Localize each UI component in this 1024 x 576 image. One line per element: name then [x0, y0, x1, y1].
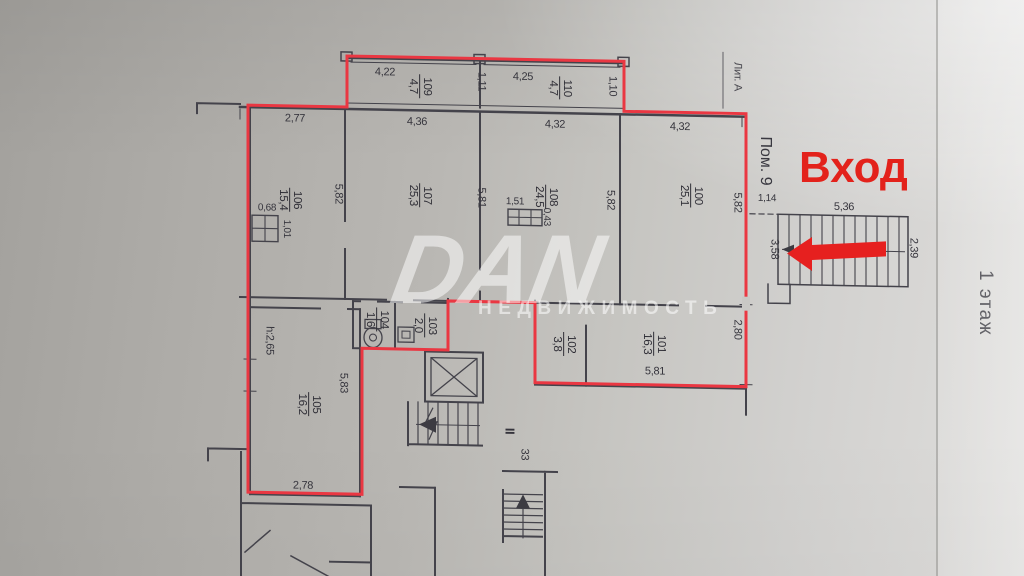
dim-label: 2,77: [285, 113, 305, 124]
room-area: 1,6: [364, 307, 377, 332]
section-label: II: [504, 428, 517, 435]
dim-label: 1,10: [607, 76, 618, 96]
room-label-106: 106 15,4: [277, 188, 303, 213]
dim-label: 5,82: [605, 190, 616, 210]
room-area: 16,2: [296, 392, 309, 417]
room-label-105: 105 16,2: [296, 392, 322, 417]
room-number: 107: [420, 183, 434, 208]
dim-label: 0,68: [258, 203, 276, 213]
room-area: 25,1: [678, 183, 691, 208]
room-label-102: 102 3,8: [551, 332, 577, 357]
room-label-101: 101 16,3: [641, 332, 667, 357]
paper-edge-strip: [938, 0, 1024, 576]
room-area: 25,3: [407, 183, 420, 208]
entrance-arrow-icon: [787, 236, 886, 272]
dim-label: 4,22: [375, 67, 395, 78]
dim-label: 1,01: [281, 220, 291, 238]
room-number: 100: [691, 183, 705, 208]
room-area: 3,8: [551, 332, 564, 357]
room-label-107: 107 25,3: [407, 183, 433, 208]
dim-label: 4,32: [545, 119, 565, 130]
room-area: 16,3: [641, 332, 654, 357]
elevator-shaft: [425, 352, 483, 403]
floorplan-photo: 4,22 1,11 4,25 1,10 2,77 4,36 4,32 4,32 …: [0, 0, 1024, 576]
dim-label: 1,51: [506, 197, 524, 207]
liter-label: Лит. А: [732, 62, 743, 91]
premise-label: Пом. 9: [757, 136, 773, 185]
dim-label: 4,36: [407, 117, 427, 128]
room-area: 4,7: [407, 74, 420, 99]
room-number: 101: [654, 332, 668, 357]
dim-label: h:2,65: [264, 326, 275, 355]
apartment-number-label: 33: [519, 448, 530, 460]
dim-label: 5,82: [333, 184, 344, 204]
room-number: 108: [546, 185, 560, 210]
dim-label: 2,78: [293, 480, 313, 491]
dim-label: 5,83: [338, 373, 349, 393]
dim-label: 1,11: [476, 72, 487, 92]
entrance-annotation: Вход: [799, 146, 908, 190]
dim-label: 1,14: [758, 194, 776, 204]
dim-label: 5,81: [476, 187, 487, 207]
dim-label: 5,81: [645, 366, 665, 377]
dim-label: 3,58: [769, 239, 780, 259]
entry-door-gap: [742, 297, 750, 311]
room-number: 106: [290, 188, 304, 213]
room-number: 110: [560, 76, 574, 100]
watermark-tagline: НЕДВИЖИМОСТЬ: [478, 299, 723, 318]
vent-shaft-icon: [252, 215, 278, 241]
dim-label: 4,32: [670, 122, 690, 133]
dim-label: 2,80: [732, 319, 743, 339]
room-number: 105: [309, 392, 323, 417]
dim-label: 4,25: [513, 72, 533, 83]
dim-label: 5,82: [732, 192, 743, 212]
room-label-108: 108 24,5: [533, 184, 559, 209]
room-number: 102: [564, 332, 578, 357]
room-number: 109: [420, 74, 434, 99]
room-area: 15,4: [277, 188, 290, 213]
room-label-100: 100 25,1: [678, 183, 704, 208]
room-area: 24,5: [533, 184, 546, 209]
room-area: 4,7: [547, 76, 560, 100]
room-label-109: 109 4,7: [407, 74, 433, 99]
room-label-110: 110 4,7: [547, 76, 573, 100]
dim-label: 5,36: [834, 202, 854, 213]
dim-label: 2,39: [908, 238, 919, 258]
